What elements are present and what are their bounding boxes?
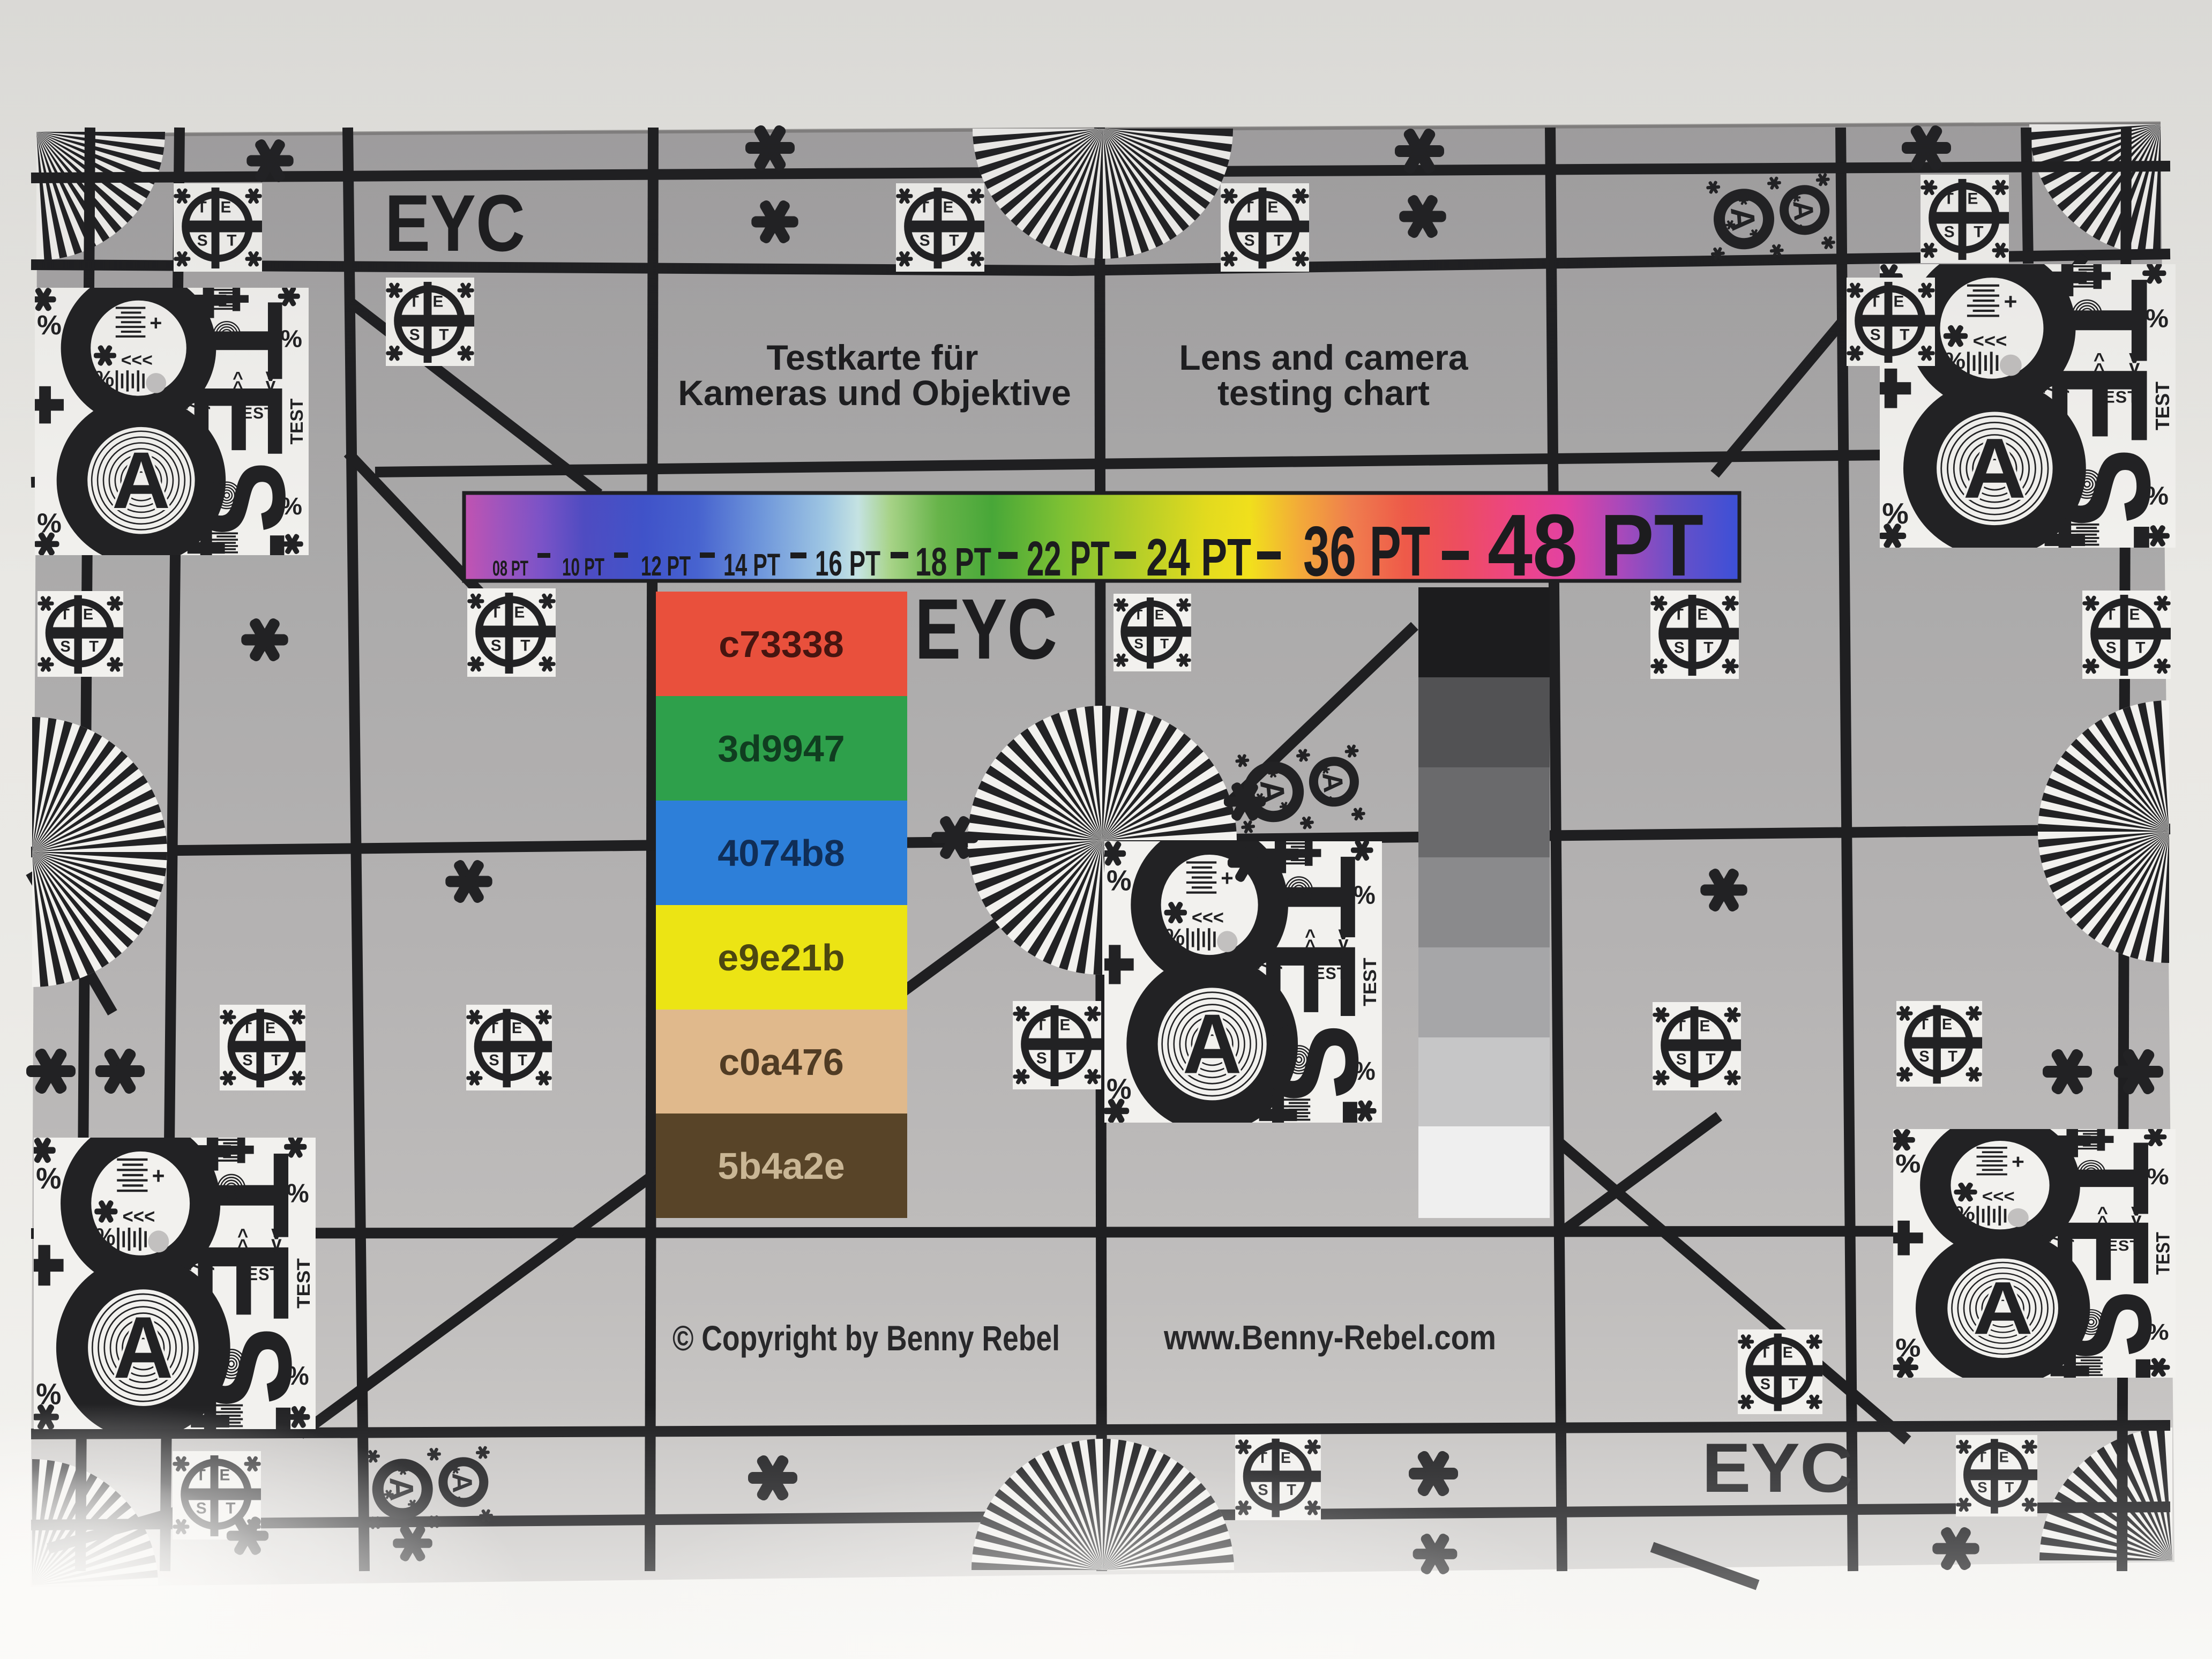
svg-text:© Copyright by Benny Rebel: © Copyright by Benny Rebel <box>672 1318 1060 1358</box>
svg-text:EYC: EYC <box>915 581 1057 677</box>
svg-text:5b4a2e: 5b4a2e <box>718 1145 845 1187</box>
svg-text:e9e21b: e9e21b <box>718 937 845 978</box>
svg-text:c73338: c73338 <box>719 623 844 665</box>
svg-text:c0a476: c0a476 <box>719 1041 844 1083</box>
svg-text:4074b8: 4074b8 <box>718 832 845 874</box>
svg-text:3d9947: 3d9947 <box>718 728 845 769</box>
svg-text:www.Benny-Rebel.com: www.Benny-Rebel.com <box>1163 1318 1496 1357</box>
